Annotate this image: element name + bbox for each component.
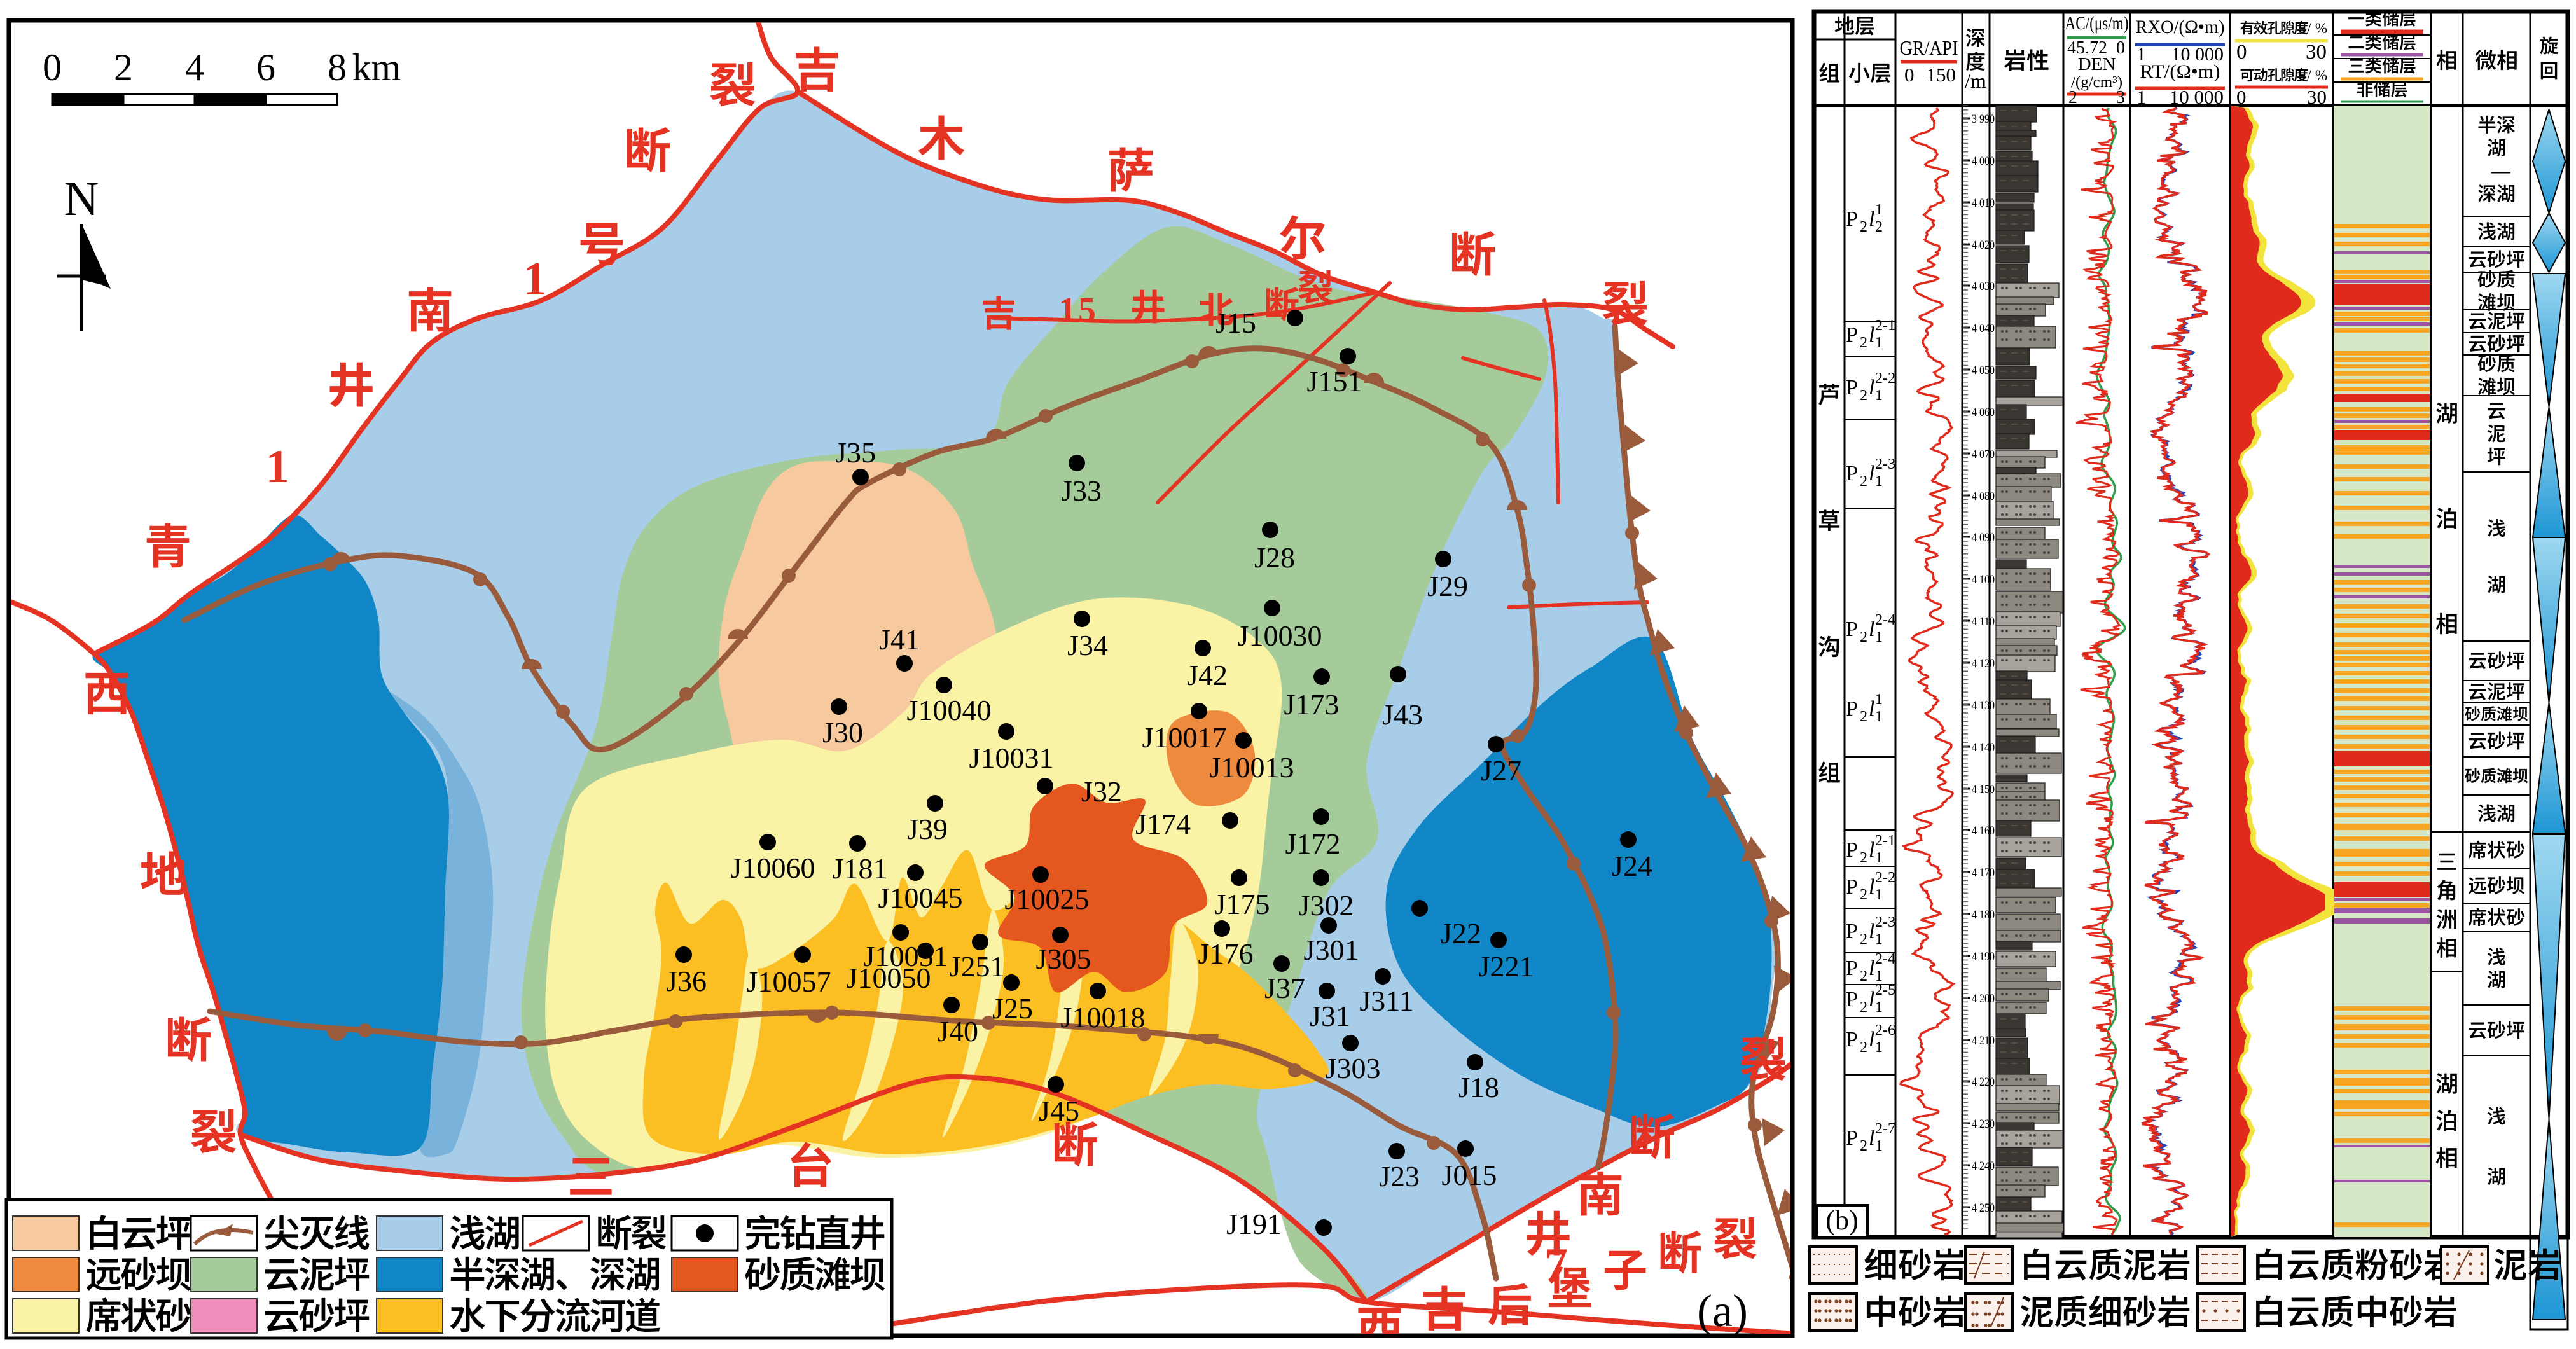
svg-text:J10018: J10018 (1061, 1001, 1146, 1034)
svg-text:2-4: 2-4 (1875, 612, 1895, 628)
svg-text:l: l (1869, 988, 1874, 1011)
svg-text:0: 0 (43, 46, 62, 88)
svg-text:J251: J251 (950, 950, 1005, 983)
svg-text:P: P (1846, 875, 1858, 899)
svg-text:2: 2 (1860, 473, 1867, 490)
svg-text:150: 150 (1927, 64, 1956, 86)
svg-text:2-6: 2-6 (1875, 1022, 1895, 1039)
svg-text:J40: J40 (938, 1015, 978, 1048)
svg-text:P: P (1846, 1028, 1858, 1051)
svg-text:1: 1 (1875, 202, 1883, 218)
svg-text:1: 1 (1875, 691, 1883, 708)
svg-text:2: 2 (1860, 850, 1867, 866)
svg-text:4 170: 4 170 (1972, 866, 1995, 880)
svg-text:1: 1 (1875, 887, 1883, 903)
svg-text:4 210: 4 210 (1972, 1034, 1995, 1048)
svg-text:2-7: 2-7 (1875, 1121, 1895, 1137)
svg-text:RT/(Ω•m): RT/(Ω•m) (2140, 61, 2220, 82)
svg-text:J32: J32 (1081, 775, 1122, 808)
svg-text:J36: J36 (666, 965, 707, 997)
svg-text:J191: J191 (1226, 1208, 1282, 1240)
svg-text:1: 1 (1058, 291, 1076, 330)
svg-text:J24: J24 (1612, 850, 1652, 882)
svg-text:J33: J33 (1061, 474, 1102, 507)
svg-text:2: 2 (114, 46, 133, 88)
svg-text:2: 2 (1860, 219, 1867, 235)
svg-text:0: 0 (2116, 38, 2125, 58)
svg-text:8: 8 (328, 46, 347, 88)
svg-text:J10013: J10013 (1210, 751, 1294, 784)
svg-text:4 110: 4 110 (1972, 615, 1995, 628)
svg-text:1: 1 (2136, 86, 2147, 108)
svg-text:1: 1 (1875, 473, 1883, 490)
svg-text:J35: J35 (835, 436, 876, 469)
svg-text:4 000: 4 000 (1972, 155, 1995, 168)
svg-text:4: 4 (185, 46, 204, 88)
svg-text:2-2: 2-2 (1875, 869, 1895, 886)
svg-text:2: 2 (1860, 968, 1867, 985)
svg-text:4 070: 4 070 (1972, 448, 1995, 461)
svg-text:J10017: J10017 (1142, 721, 1227, 754)
svg-text:1: 1 (1875, 335, 1883, 351)
svg-text:/m: /m (1965, 69, 1986, 92)
svg-text:J42: J42 (1187, 659, 1228, 691)
svg-text:—: — (2491, 161, 2511, 182)
svg-text:/: / (2307, 67, 2311, 83)
svg-text:P: P (1846, 323, 1858, 347)
svg-text:J31: J31 (1310, 1000, 1350, 1032)
svg-text:J301: J301 (1304, 934, 1359, 966)
svg-text:J302: J302 (1299, 889, 1354, 922)
svg-text:4 080: 4 080 (1972, 490, 1995, 503)
svg-text:2: 2 (1860, 387, 1867, 404)
svg-text:N: N (64, 172, 99, 226)
svg-text:1: 1 (1875, 387, 1883, 404)
svg-text:2: 2 (1875, 219, 1883, 235)
svg-text:J45: J45 (1039, 1095, 1079, 1127)
svg-text:/(g/cm³): /(g/cm³) (2071, 74, 2122, 91)
svg-text:1: 1 (1875, 850, 1883, 866)
svg-text:AC/(μs/m): AC/(μs/m) (2065, 13, 2129, 34)
svg-text:4 020: 4 020 (1972, 239, 1995, 252)
svg-text:4 230: 4 230 (1972, 1117, 1995, 1131)
svg-text:%: % (2315, 67, 2327, 83)
svg-text:P: P (1846, 462, 1858, 485)
svg-text:4 250: 4 250 (1972, 1201, 1995, 1215)
svg-text:J10031: J10031 (969, 742, 1054, 774)
svg-text:l: l (1869, 957, 1874, 980)
svg-text:30: 30 (2306, 41, 2327, 64)
svg-text:J10040: J10040 (907, 694, 992, 726)
svg-text:J25: J25 (992, 992, 1033, 1025)
svg-text:2: 2 (1860, 709, 1867, 725)
svg-text:l: l (1869, 618, 1874, 641)
svg-text:1: 1 (1875, 1039, 1883, 1056)
svg-text:J221: J221 (1479, 950, 1534, 983)
svg-text:J41: J41 (879, 623, 920, 656)
svg-text:(a): (a) (1697, 1285, 1748, 1336)
svg-text:2: 2 (1860, 1039, 1867, 1056)
svg-text:J30: J30 (822, 716, 863, 749)
svg-text:l: l (1869, 376, 1874, 399)
svg-text:l: l (1869, 875, 1874, 899)
svg-text:4 160: 4 160 (1972, 824, 1995, 838)
svg-text:2-1: 2-1 (1875, 317, 1895, 334)
svg-text:J39: J39 (907, 813, 948, 845)
svg-text:l: l (1869, 838, 1874, 862)
svg-text:J22: J22 (1441, 917, 1481, 950)
svg-text:1: 1 (266, 441, 289, 493)
svg-text:4 100: 4 100 (1972, 573, 1995, 586)
svg-text:10 000: 10 000 (2170, 86, 2224, 108)
svg-text:J10025: J10025 (1005, 883, 1090, 915)
svg-text:6: 6 (256, 46, 275, 88)
svg-text:J151: J151 (1307, 365, 1362, 398)
svg-text:J176: J176 (1198, 937, 1254, 970)
svg-text:l: l (1869, 697, 1874, 721)
svg-text:J10060: J10060 (731, 852, 815, 884)
svg-text:2: 2 (1860, 887, 1867, 903)
svg-text:J305: J305 (1036, 943, 1091, 975)
svg-text:4 030: 4 030 (1972, 280, 1995, 293)
svg-text:DEN: DEN (2078, 54, 2116, 74)
svg-text:3: 3 (2116, 88, 2125, 107)
svg-text:4 060: 4 060 (1972, 406, 1995, 419)
svg-text:P: P (1846, 376, 1858, 399)
svg-text:4 130: 4 130 (1972, 699, 1995, 712)
svg-text:J18: J18 (1458, 1071, 1499, 1103)
svg-text:2: 2 (1860, 999, 1867, 1016)
svg-text:J10030: J10030 (1238, 619, 1322, 652)
svg-text:l: l (1869, 1028, 1874, 1051)
svg-text:4 180: 4 180 (1972, 908, 1995, 922)
svg-text:4 140: 4 140 (1972, 741, 1995, 754)
svg-text:0: 0 (2236, 86, 2247, 108)
svg-text:J303: J303 (1326, 1052, 1381, 1084)
svg-text:P: P (1846, 838, 1858, 862)
svg-text:l: l (1869, 1126, 1874, 1150)
svg-text:2-1: 2-1 (1875, 833, 1895, 849)
svg-text:J23: J23 (1379, 1160, 1420, 1193)
svg-text:J015: J015 (1442, 1159, 1497, 1191)
svg-text:1: 1 (1875, 629, 1883, 646)
svg-text:J181: J181 (833, 852, 888, 885)
svg-text:4 150: 4 150 (1972, 783, 1995, 796)
svg-text:5: 5 (1078, 291, 1096, 330)
svg-text:P: P (1846, 957, 1858, 980)
svg-text:1: 1 (1875, 709, 1883, 725)
svg-text:J174: J174 (1135, 808, 1191, 840)
svg-text:4 050: 4 050 (1972, 364, 1995, 377)
svg-text:2-3: 2-3 (1875, 456, 1895, 473)
svg-text:4 120: 4 120 (1972, 657, 1995, 670)
svg-text:l: l (1869, 207, 1874, 231)
svg-text:J10045: J10045 (878, 882, 963, 914)
svg-text:4 220: 4 220 (1972, 1076, 1995, 1089)
svg-text:(b): (b) (1825, 1205, 1858, 1236)
svg-text:2: 2 (1860, 335, 1867, 351)
svg-text:J34: J34 (1067, 629, 1108, 661)
svg-text:J15: J15 (1215, 307, 1256, 339)
svg-text:J10057: J10057 (747, 965, 831, 998)
svg-text:2-3: 2-3 (1875, 914, 1895, 930)
svg-text:l: l (1869, 462, 1874, 485)
svg-text:30: 30 (2307, 86, 2327, 108)
svg-text:4 200: 4 200 (1972, 992, 1995, 1006)
svg-text:1: 1 (1875, 1138, 1883, 1154)
svg-text:1: 1 (1875, 931, 1883, 948)
svg-text:J28: J28 (1254, 541, 1295, 574)
svg-text:J43: J43 (1382, 698, 1423, 731)
svg-text:P: P (1846, 697, 1858, 721)
svg-text:J173: J173 (1284, 688, 1340, 721)
svg-text:J29: J29 (1427, 570, 1468, 602)
svg-text:4 040: 4 040 (1972, 322, 1995, 335)
svg-text:l: l (1869, 323, 1874, 347)
svg-text:J10050: J10050 (847, 962, 931, 994)
svg-text:%: % (2315, 20, 2327, 36)
svg-text:4 240: 4 240 (1972, 1159, 1995, 1173)
svg-text:P: P (1846, 618, 1858, 641)
svg-text:J311: J311 (1359, 985, 1413, 1017)
svg-text:GR/API: GR/API (1900, 36, 1958, 59)
svg-text:0: 0 (2236, 41, 2247, 64)
svg-text:P: P (1846, 207, 1858, 231)
svg-text:J27: J27 (1481, 754, 1521, 787)
svg-text:1: 1 (1875, 999, 1883, 1016)
svg-text:P: P (1846, 920, 1858, 943)
svg-text:2: 2 (1860, 1138, 1867, 1154)
svg-text:2: 2 (1860, 931, 1867, 948)
svg-text:0: 0 (1904, 64, 1915, 86)
svg-text:2: 2 (2068, 88, 2077, 107)
svg-text:J172: J172 (1285, 827, 1341, 860)
svg-text:km: km (352, 46, 401, 88)
svg-text:J175: J175 (1215, 888, 1270, 920)
svg-text:RXO/(Ω•m): RXO/(Ω•m) (2136, 17, 2225, 38)
svg-text:4 010: 4 010 (1972, 197, 1995, 210)
svg-text:J37: J37 (1264, 972, 1305, 1004)
svg-text:P: P (1846, 1126, 1858, 1150)
svg-text:P: P (1846, 988, 1858, 1011)
svg-text:/: / (2307, 20, 2311, 36)
svg-text:2-2: 2-2 (1875, 370, 1895, 387)
svg-text:l: l (1869, 920, 1874, 943)
svg-text:3 990: 3 990 (1972, 113, 1995, 126)
svg-text:4 090: 4 090 (1972, 531, 1995, 544)
svg-text:4 190: 4 190 (1972, 950, 1995, 964)
svg-text:2: 2 (1860, 629, 1867, 646)
svg-text:1: 1 (523, 253, 547, 305)
